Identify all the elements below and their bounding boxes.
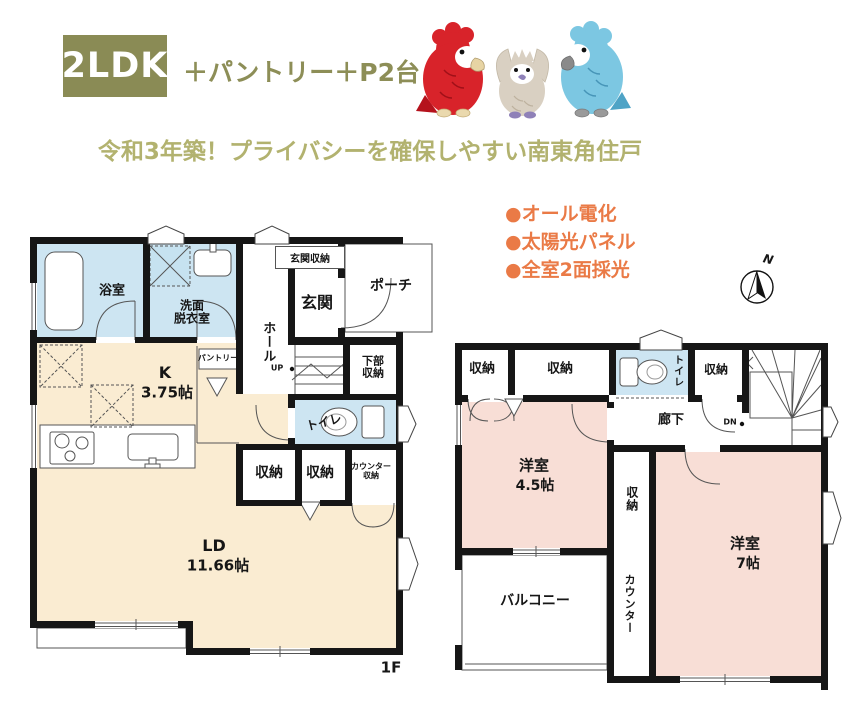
floorplan-flyer: 2LDK ＋パントリー＋P2台 令和3年築！プライバシーを確保しやすい南東角住戸… [0,0,863,702]
layout-badge-text: 2LDK [62,46,169,86]
room-label-kitchen: K [159,364,171,382]
room-label-western-7: 洋室 [730,536,760,553]
red-parrot-icon [416,22,484,117]
feature-item: ●太陽光パネル [505,228,636,256]
room-label-washroom: 洗面 脱衣室 [174,300,210,327]
room-size-western-7: 7帖 [736,557,760,573]
compass-icon [741,271,773,303]
plan-graphics [0,0,863,702]
room-label-bath: 浴室 [99,285,125,300]
gable-vent-icon [148,226,184,244]
stairs-1f [290,345,346,394]
room-label-storage-center: 収納 [624,486,637,512]
feature-list: ●オール電化 ●太陽光パネル ●全室2面採光 [505,200,636,284]
layout-badge: 2LDK [63,35,167,97]
room-label-counter: カウンター [623,574,635,634]
layout-subtitle: ＋パントリー＋P2台 [183,53,420,89]
room-label-hallway: 廊下 [658,414,684,429]
room-label-toilet-2f: トイレ [671,355,682,388]
opening-marker [823,407,838,437]
room-label-storage-2: 収納 [306,466,334,482]
feature-item: ●オール電化 [505,200,636,228]
room-label-porch: ポーチ [370,279,412,295]
room-label-entrance: 玄関 [301,294,333,312]
stairs-up-label: UP [271,365,283,374]
room-label-counter-storage: カウンター 収納 [351,463,391,481]
stairs-2f [740,350,821,445]
room-size-kitchen: 3.75帖 [141,385,193,402]
bathtub-icon [45,252,83,330]
room-label-balcony: バルコニー [500,594,570,610]
gable-vent-icon [255,226,289,244]
room-label-storage-c: 収納 [704,363,728,376]
blue-parrot-icon [561,21,631,117]
stairs-down-label: DN [723,419,736,428]
room-label-storage-b: 収納 [547,363,573,378]
room-label-storage-a: 収納 [469,363,495,378]
opening-marker [398,538,418,590]
room-label-living: LD [202,537,225,555]
room-label-pantry: パントリー [198,355,238,364]
room-label-entrance-storage: 玄関収納 [275,246,345,269]
catch-copy-title: 令和3年築！プライバシーを確保しやすい南東角住戸 [50,132,690,166]
room-label-storage-1: 収納 [255,466,283,482]
opening-marker [823,492,841,544]
room-label-under-stairs-storage: 下部 収納 [362,356,384,381]
feature-item: ●全室2面採光 [505,256,636,284]
room-label-hall: ホール [260,321,275,363]
toilet-icon-2f [620,358,667,386]
grey-cockatiel-icon [496,49,548,119]
floor-label-1f: 1F [381,660,402,677]
room-size-western-45: 4.5帖 [516,479,555,495]
washer-pan-icon [150,246,190,286]
room-label-western-45: 洋室 [519,458,549,475]
room-size-living: 11.66帖 [187,558,249,575]
opening-marker [398,406,416,442]
kitchen-counter-icon [40,425,195,468]
gable-vent-icon [640,330,682,350]
